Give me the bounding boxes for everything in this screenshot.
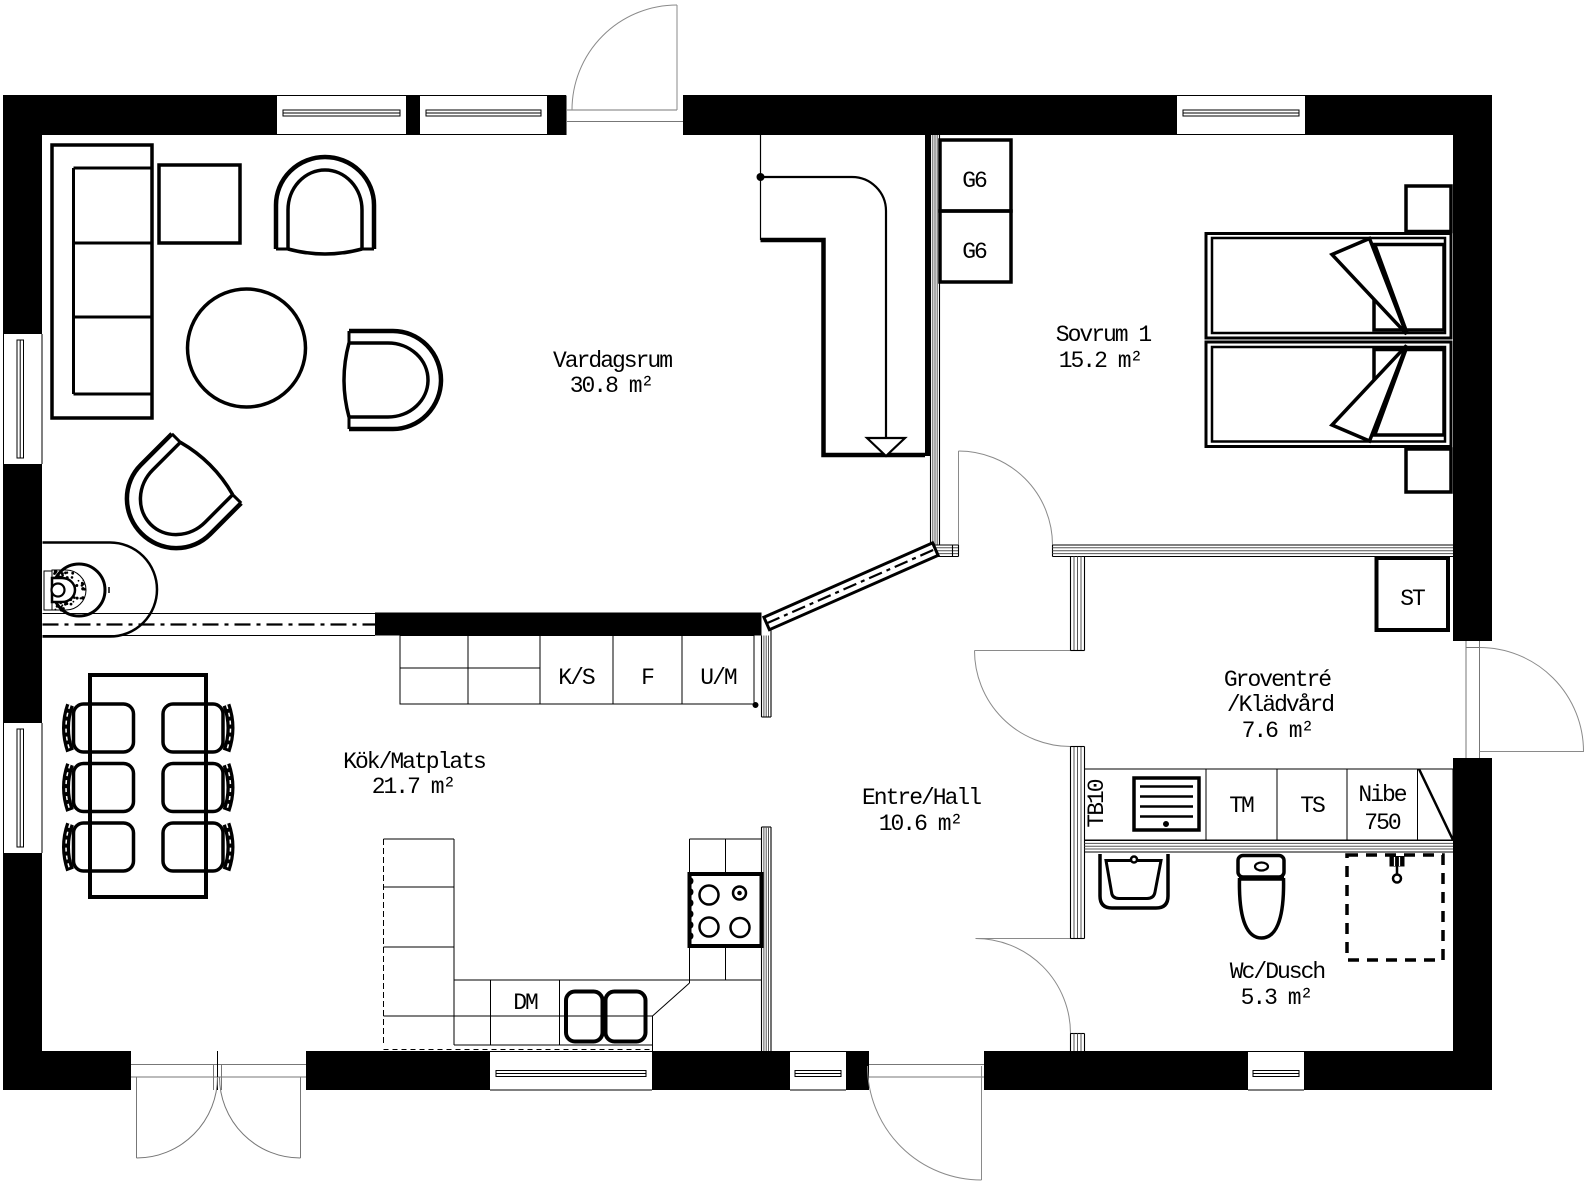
svg-text:30.8 m²: 30.8 m² bbox=[570, 373, 653, 399]
svg-text:7.6 m²: 7.6 m² bbox=[1242, 718, 1313, 744]
svg-text:G6: G6 bbox=[962, 168, 987, 194]
svg-text:Vardagsrum: Vardagsrum bbox=[553, 348, 672, 374]
svg-text:ST: ST bbox=[1400, 586, 1425, 612]
svg-text:15.2 m²: 15.2 m² bbox=[1059, 348, 1142, 374]
svg-text:DM: DM bbox=[513, 990, 538, 1016]
svg-text:750: 750 bbox=[1364, 810, 1401, 836]
svg-text:G6: G6 bbox=[962, 239, 987, 265]
svg-text:21.7 m²: 21.7 m² bbox=[372, 774, 455, 800]
svg-text:Entre/Hall: Entre/Hall bbox=[862, 785, 981, 811]
svg-text:Kök/Matplats: Kök/Matplats bbox=[343, 749, 485, 775]
svg-text:Groventré: Groventré bbox=[1224, 667, 1331, 693]
svg-text:TB10: TB10 bbox=[1084, 779, 1110, 827]
svg-text:K/S: K/S bbox=[558, 665, 595, 691]
svg-text:U/M: U/M bbox=[700, 665, 737, 691]
svg-text:Sovrum 1: Sovrum 1 bbox=[1056, 322, 1152, 348]
svg-text:TS: TS bbox=[1300, 793, 1325, 819]
svg-text:10.6 m²: 10.6 m² bbox=[879, 811, 962, 837]
svg-text:Nibe: Nibe bbox=[1358, 782, 1406, 808]
svg-text:TM: TM bbox=[1229, 793, 1254, 819]
svg-text:Wc/Dusch: Wc/Dusch bbox=[1230, 959, 1325, 985]
svg-text:/Klädvård: /Klädvård bbox=[1227, 692, 1333, 718]
svg-text:F: F bbox=[641, 665, 654, 691]
svg-text:5.3 m²: 5.3 m² bbox=[1241, 985, 1312, 1011]
